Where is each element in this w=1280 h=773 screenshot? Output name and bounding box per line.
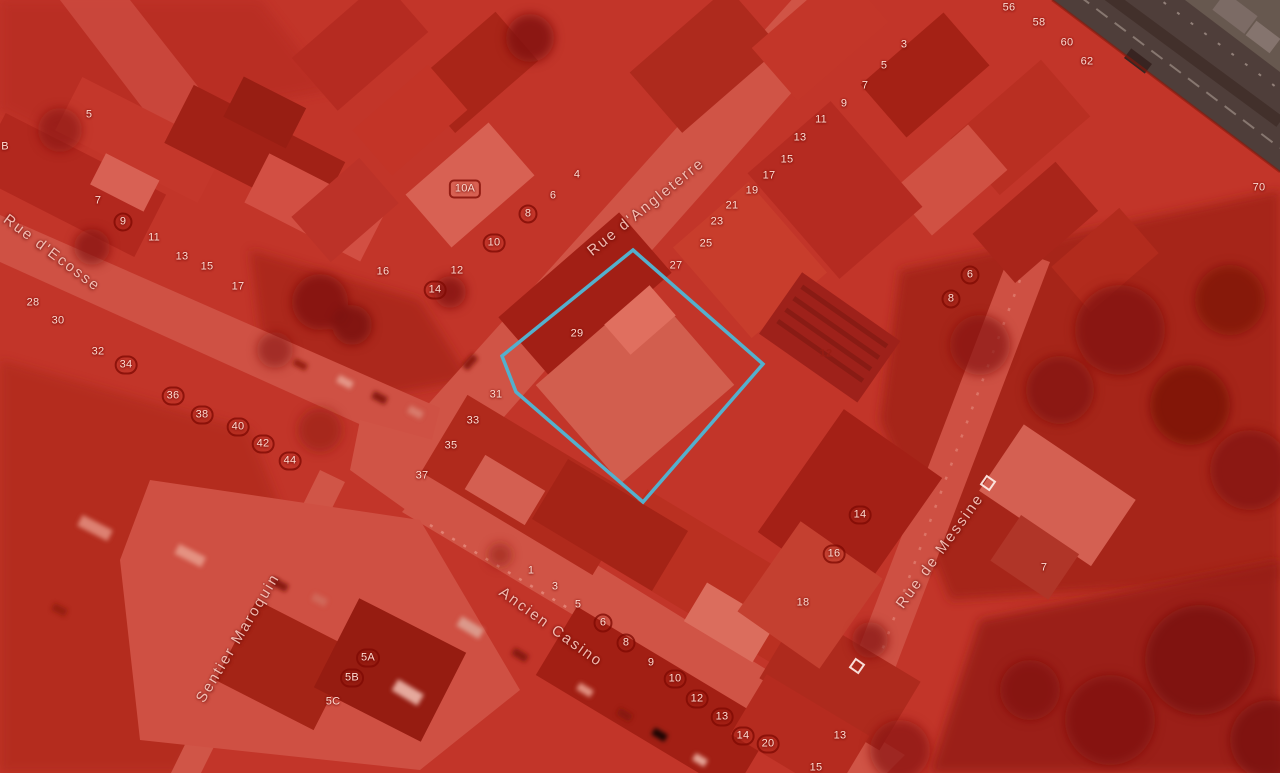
aerial-imagery-layer xyxy=(0,0,1280,773)
highway-corridor xyxy=(1052,0,1280,172)
map-canvas[interactable]: Rue d'EcosseRue d'AngleterreSentier Maro… xyxy=(0,0,1280,773)
